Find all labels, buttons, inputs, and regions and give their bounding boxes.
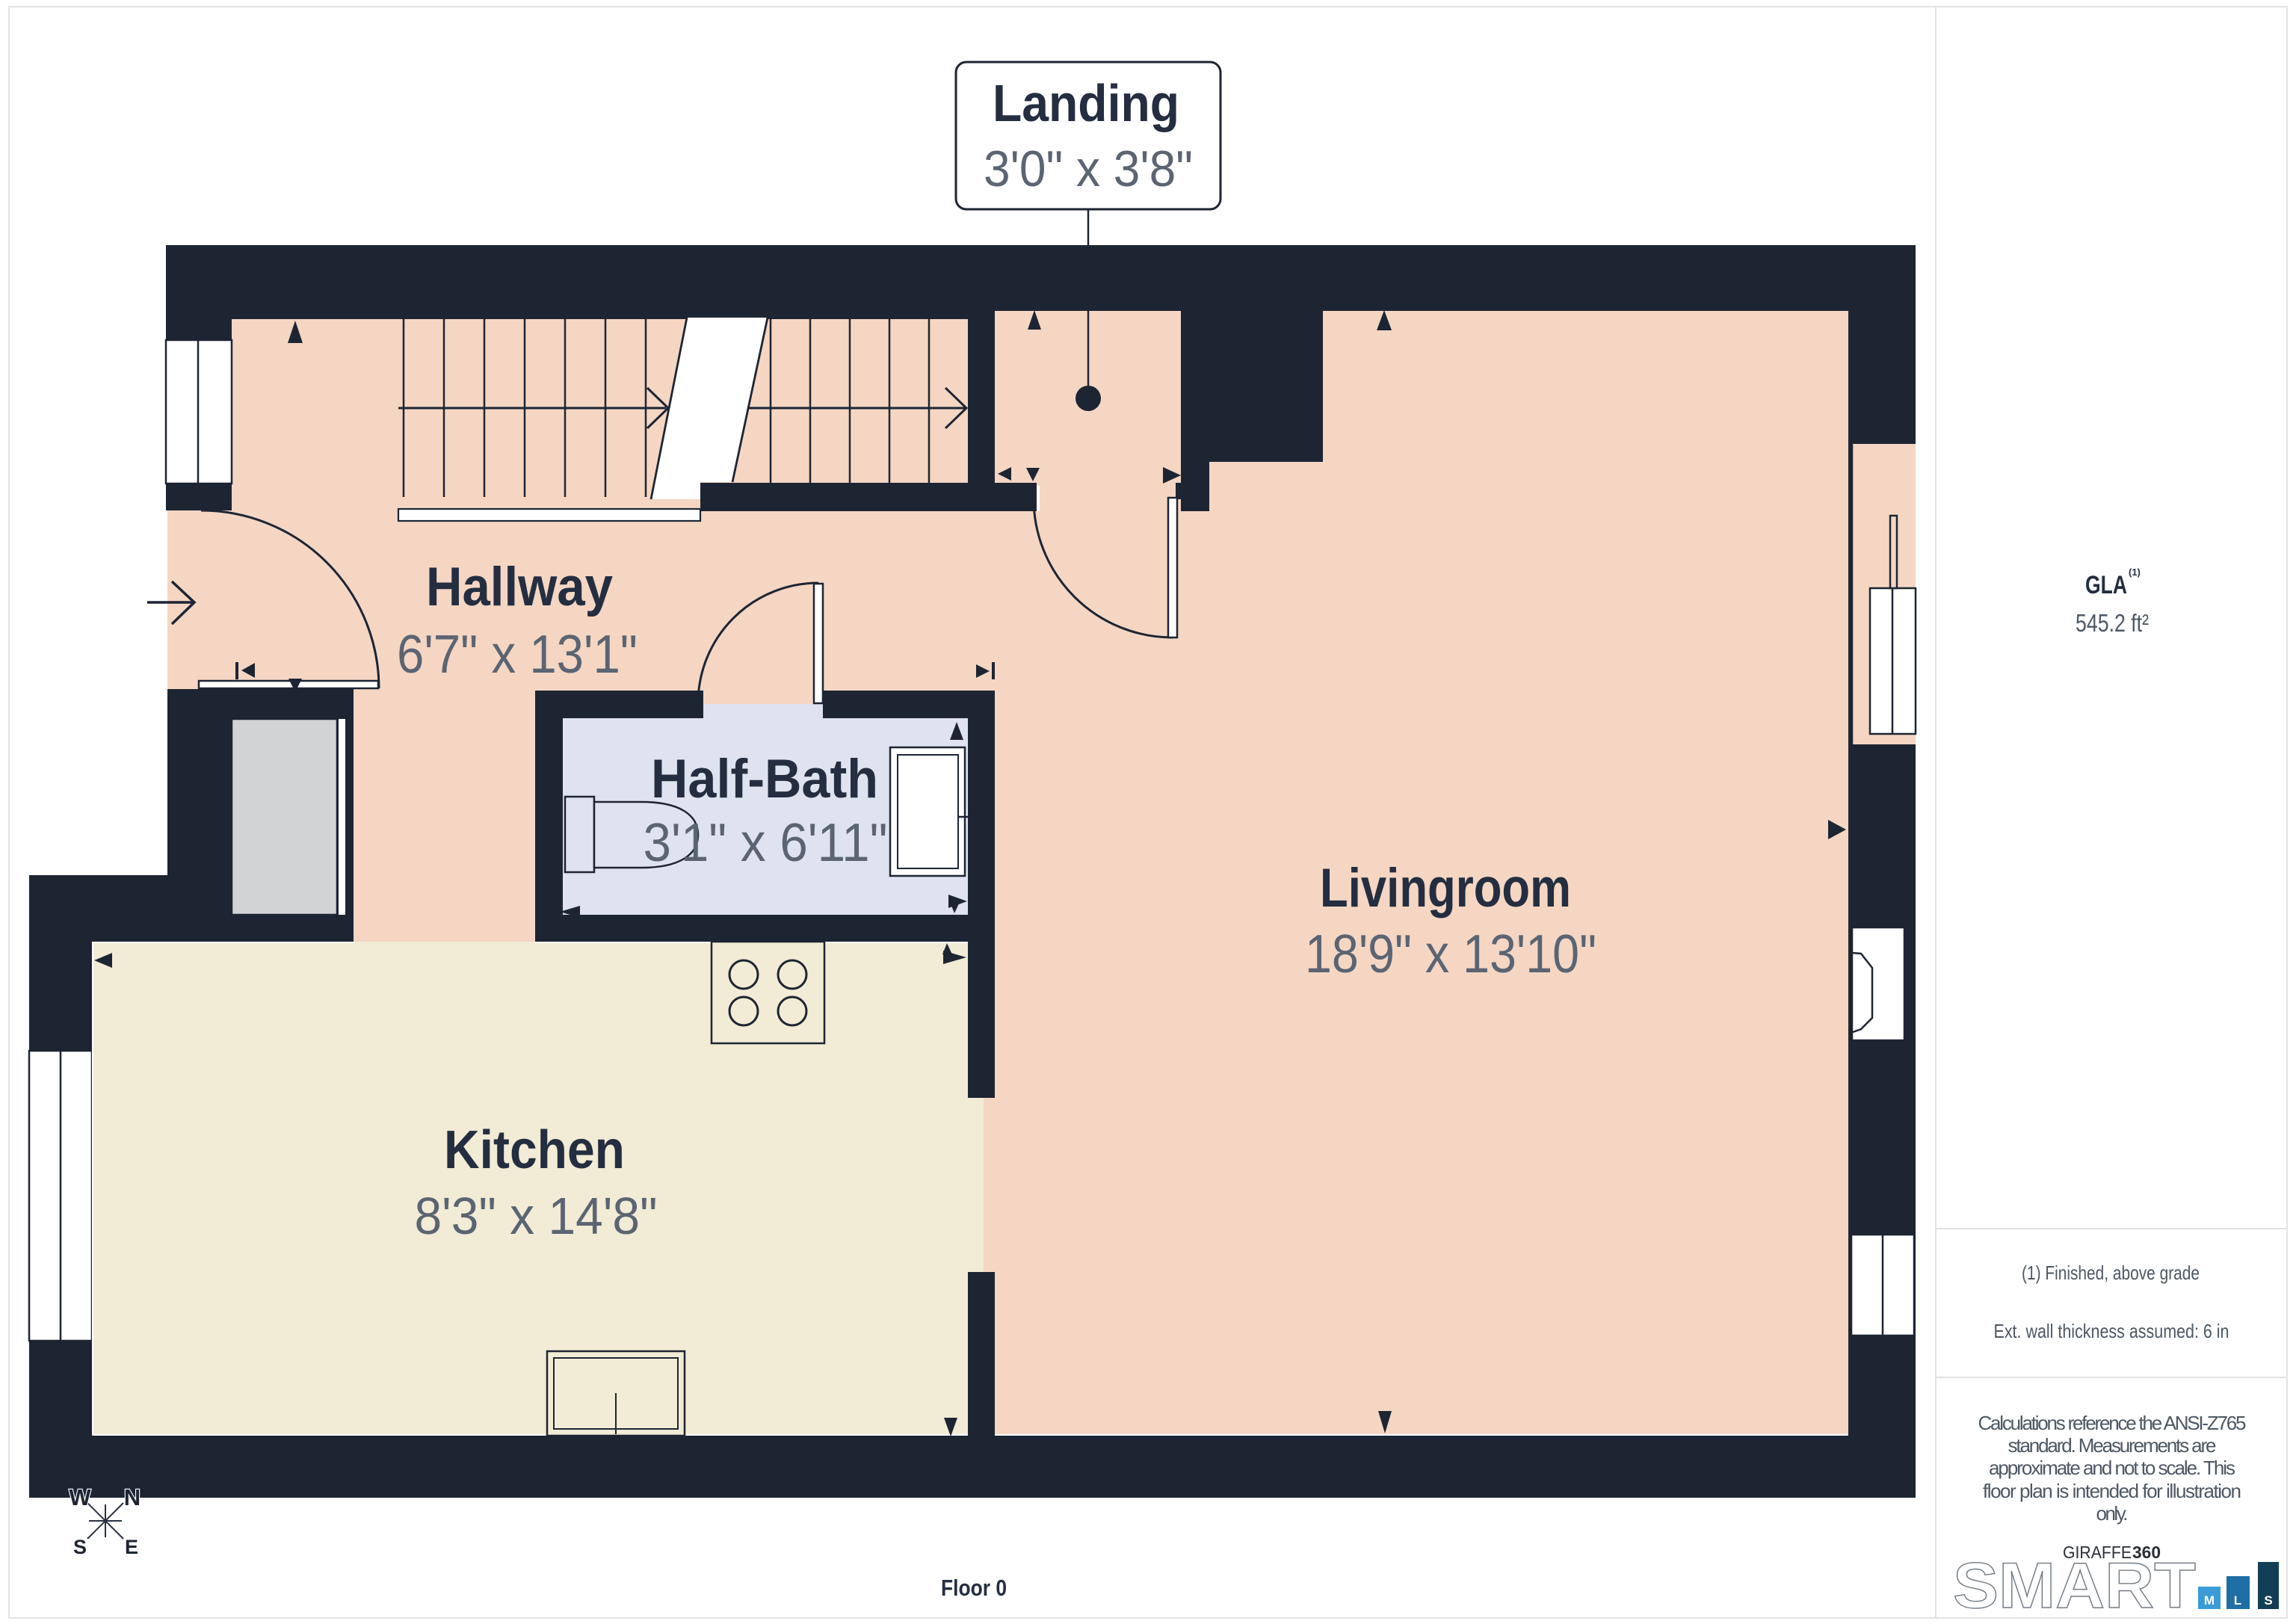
- svg-text:L: L: [2234, 1593, 2241, 1608]
- svg-text:545.2 ft²: 545.2 ft²: [2076, 609, 2149, 637]
- svg-text:Hallway: Hallway: [426, 557, 613, 617]
- svg-text:6'7" x 13'1": 6'7" x 13'1": [397, 625, 638, 685]
- svg-text:18'9" x 13'10": 18'9" x 13'10": [1305, 924, 1596, 984]
- svg-text:Half-Bath: Half-Bath: [651, 749, 878, 809]
- svg-text:only.: only.: [2096, 1502, 2129, 1525]
- svg-text:SMART: SMART: [1953, 1550, 2196, 1622]
- svg-text:approximate and not to scale.: approximate and not to scale. This: [1989, 1457, 2235, 1479]
- svg-text:Landing: Landing: [993, 74, 1179, 132]
- svg-text:(1) Finished, above grade: (1) Finished, above grade: [2022, 1262, 2200, 1284]
- svg-text:E: E: [125, 1536, 138, 1558]
- svg-text:S: S: [73, 1536, 87, 1558]
- svg-text:S: S: [2264, 1593, 2272, 1608]
- svg-text:M: M: [2204, 1593, 2215, 1608]
- svg-text:Livingroom: Livingroom: [1320, 858, 1571, 918]
- svg-text:(1): (1): [2129, 566, 2141, 578]
- svg-text:Ext. wall thickness assumed: 6: Ext. wall thickness assumed: 6 in: [1994, 1320, 2229, 1342]
- svg-text:N: N: [124, 1484, 141, 1510]
- svg-text:W: W: [69, 1484, 91, 1510]
- svg-text:standard. Measurements are: standard. Measurements are: [2008, 1434, 2217, 1457]
- svg-text:3'0" x 3'8": 3'0" x 3'8": [984, 141, 1193, 197]
- svg-text:Floor 0: Floor 0: [941, 1575, 1007, 1601]
- svg-text:8'3" x 14'8": 8'3" x 14'8": [415, 1187, 658, 1245]
- svg-text:GLA: GLA: [2085, 571, 2127, 599]
- svg-text:Calculations reference the ANS: Calculations reference the ANSI-Z765: [1978, 1412, 2247, 1434]
- svg-text:floor plan is intended for ill: floor plan is intended for illustration: [1983, 1480, 2241, 1502]
- svg-text:3'1" x 6'11": 3'1" x 6'11": [644, 813, 888, 873]
- svg-text:Kitchen: Kitchen: [444, 1120, 625, 1180]
